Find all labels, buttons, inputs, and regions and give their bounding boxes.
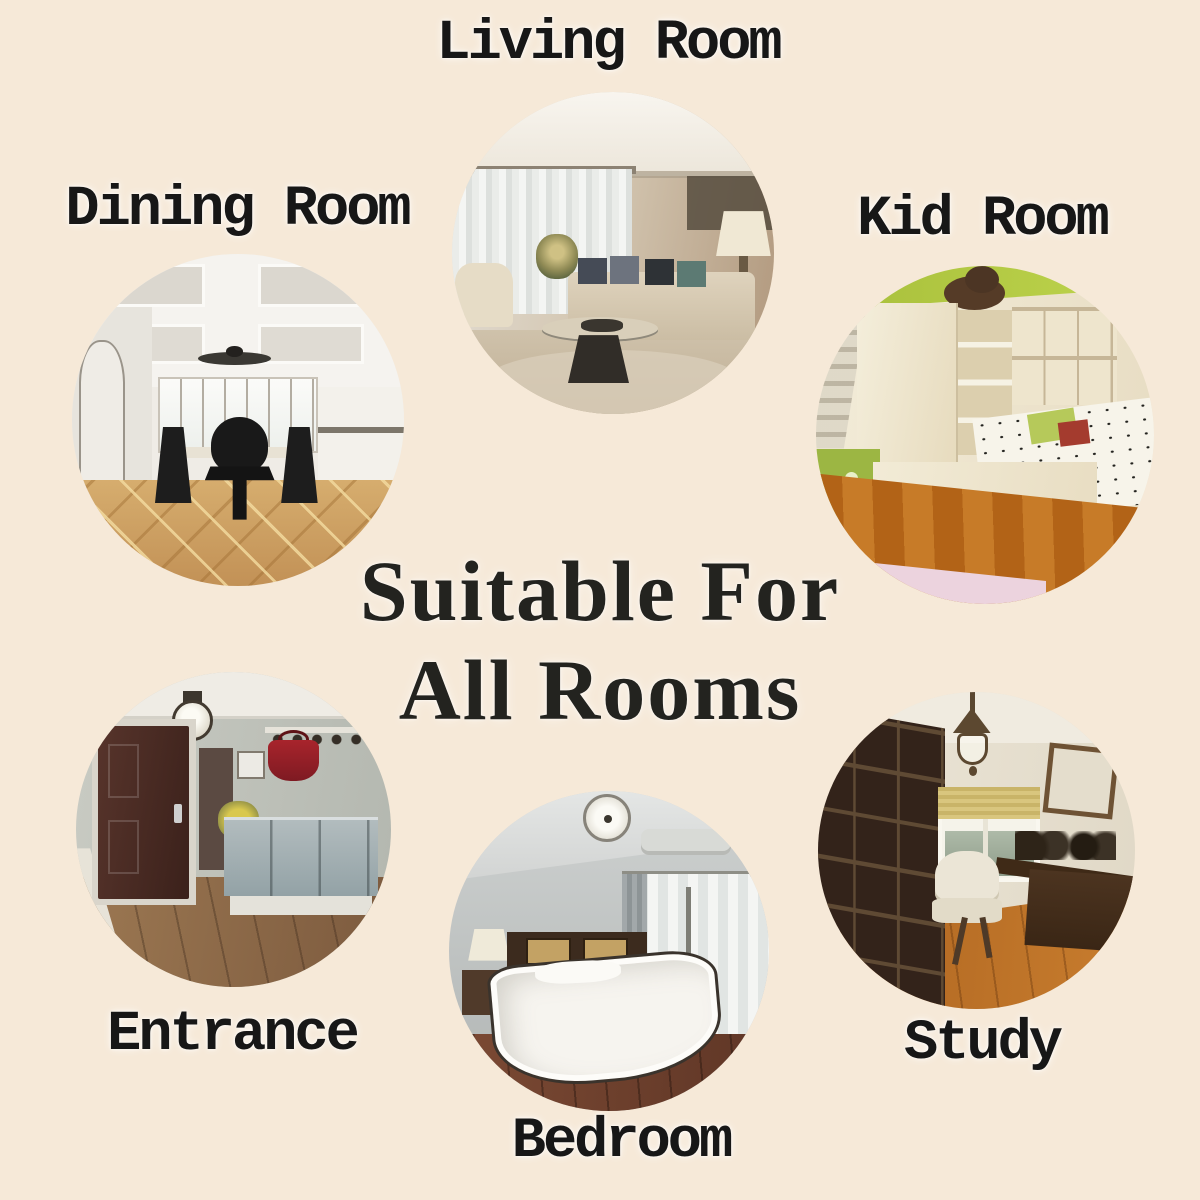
product-infographic: Living Room Dining Room Kid Room Entranc…: [0, 0, 1200, 1200]
door-handle: [174, 804, 182, 823]
desk-body: [1025, 869, 1135, 953]
coffer-panel: [89, 264, 205, 307]
counter-edge: [318, 427, 404, 434]
room-label-entrance: Entrance: [107, 1003, 357, 1067]
chandelier-finial: [969, 766, 977, 776]
table-decor: [581, 319, 623, 332]
armchair: [455, 263, 513, 327]
room-label-study: Study: [904, 1012, 1060, 1076]
dining-room-photo: [72, 254, 404, 586]
cushion: [645, 259, 674, 285]
ceiling-fan-hub: [226, 346, 243, 357]
room-label-kid: Kid Room: [857, 188, 1107, 252]
living-room-photo: [452, 92, 774, 414]
door-panel: [108, 820, 140, 874]
coffer-panel: [258, 264, 381, 307]
cubby-shelves: [1012, 307, 1117, 405]
room-label-bedroom: Bedroom: [512, 1110, 730, 1174]
cushion: [610, 256, 639, 283]
window-blind: [938, 787, 1039, 819]
coffer-panel: [258, 324, 364, 364]
entrance-photo: [76, 672, 391, 987]
storage-bench: [224, 817, 378, 896]
cushion: [677, 261, 706, 287]
kid-room-photo: [816, 266, 1154, 604]
room-label-living: Living Room: [436, 12, 779, 76]
dining-chair-back: [211, 417, 267, 473]
bookshelf: [818, 705, 945, 1009]
chair-back: [935, 851, 998, 905]
red-bag: [268, 740, 318, 781]
table-lamp: [468, 929, 510, 961]
bench-base: [230, 896, 372, 915]
picture-frame: [237, 751, 265, 779]
desk-decor: [1015, 831, 1116, 860]
bedroom-photo: [449, 791, 769, 1111]
room-label-dining: Dining Room: [65, 178, 408, 242]
arched-doorway: [79, 340, 125, 486]
floor-lamp: [716, 211, 771, 256]
blanket-patch: [1058, 420, 1091, 447]
ceiling: [452, 92, 774, 176]
picture-frame: [1043, 742, 1120, 819]
study-photo: [818, 692, 1135, 1009]
cushion: [578, 258, 607, 284]
lantern-chandelier: [957, 733, 987, 765]
air-conditioner: [641, 829, 731, 855]
door-panel: [108, 744, 140, 798]
teddy-bear-head: [965, 266, 999, 293]
cabinets: [318, 387, 404, 487]
ceiling: [76, 672, 391, 719]
